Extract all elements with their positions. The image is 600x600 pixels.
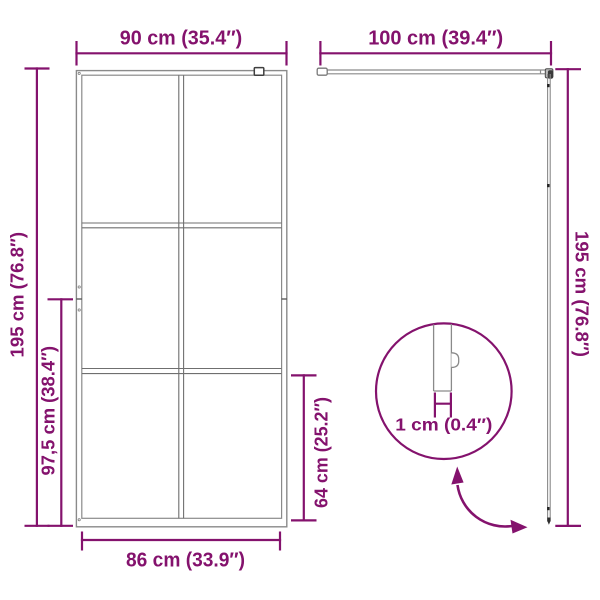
svg-text:100 cm (39.4″): 100 cm (39.4″) xyxy=(368,28,503,50)
svg-text:86 cm (33.9″): 86 cm (33.9″) xyxy=(126,550,245,572)
svg-text:90 cm (35.4″): 90 cm (35.4″) xyxy=(120,28,243,50)
svg-text:1 cm (0.4″): 1 cm (0.4″) xyxy=(395,415,492,435)
svg-text:64 cm (25.2″): 64 cm (25.2″) xyxy=(311,397,332,508)
svg-text:195 cm (76.8″): 195 cm (76.8″) xyxy=(6,232,27,358)
svg-text:97,5 cm (38.4″): 97,5 cm (38.4″) xyxy=(38,346,59,476)
svg-text:195 cm (76.8″): 195 cm (76.8″) xyxy=(572,231,593,357)
